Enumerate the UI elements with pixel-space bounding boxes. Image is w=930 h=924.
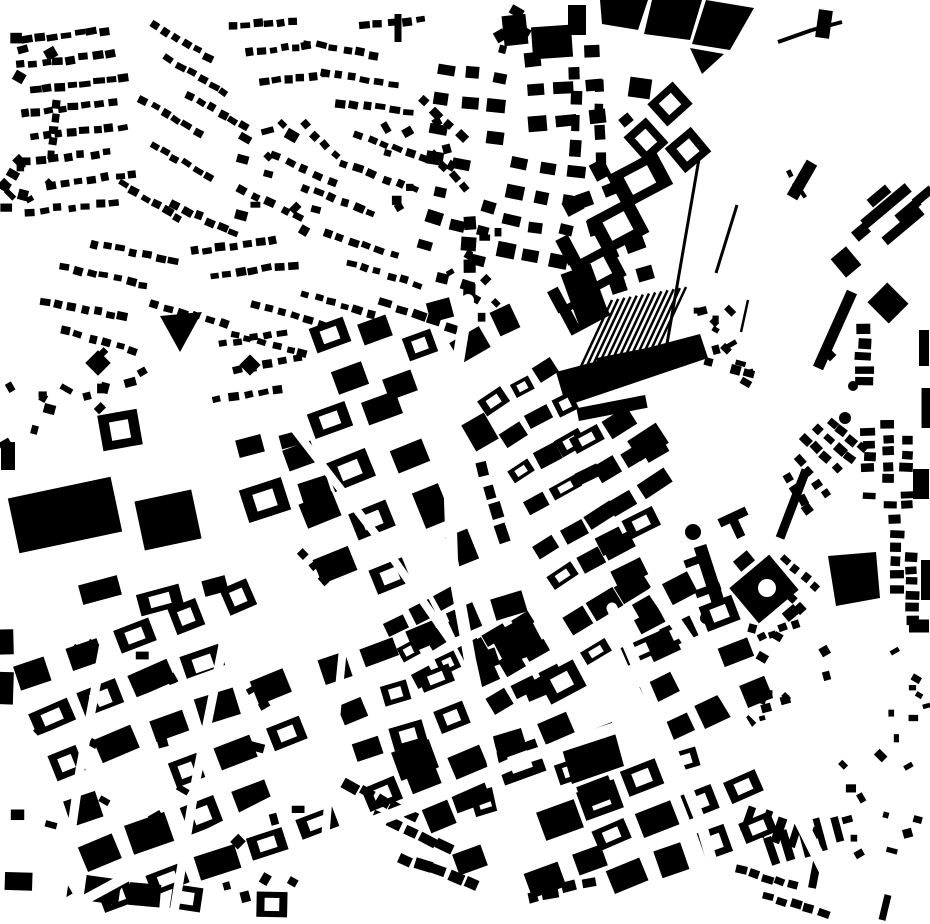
building-footprint	[228, 392, 240, 402]
building-footprint	[553, 81, 574, 94]
building-footprint	[34, 33, 45, 42]
building-footprint	[293, 354, 302, 362]
building-footprint	[60, 179, 70, 187]
building-footprint	[594, 125, 605, 140]
building-footprint	[854, 352, 871, 361]
building-footprint	[11, 810, 24, 821]
building-footprint	[240, 22, 250, 28]
building-footprint	[890, 556, 900, 566]
building-footprint	[712, 316, 718, 324]
building-footprint	[36, 156, 47, 165]
building-footprint	[49, 126, 59, 134]
building-footprint	[335, 99, 346, 108]
building-footprint	[863, 492, 876, 499]
figure-ground-map	[0, 0, 930, 924]
building-footprint	[68, 205, 76, 213]
building-footprint	[210, 273, 219, 280]
building-footprint	[41, 84, 51, 93]
building-footprint	[263, 20, 273, 27]
building-footprint	[256, 237, 266, 246]
building-footprint	[292, 806, 305, 813]
building-footprint	[66, 302, 76, 312]
building-footprint	[594, 104, 603, 117]
building-footprint	[486, 131, 505, 146]
courtyard	[264, 898, 279, 911]
building-footprint	[425, 150, 444, 166]
building-footprint	[888, 514, 901, 524]
building-footprint	[882, 474, 894, 483]
building-footprint	[913, 469, 929, 499]
building-footprint	[10, 33, 22, 44]
building-footprint	[909, 620, 929, 633]
building-footprint	[567, 165, 587, 179]
building-footprint	[302, 40, 311, 49]
building-footprint	[571, 91, 583, 105]
building-polygon	[828, 552, 880, 606]
building-footprint	[388, 81, 399, 88]
building-footprint	[270, 47, 278, 54]
building-footprint	[249, 333, 258, 341]
courtyard	[109, 419, 131, 441]
building-footprint	[0, 672, 14, 705]
building-footprint	[478, 313, 486, 322]
building-footprint	[30, 133, 39, 141]
building-footprint	[528, 222, 543, 234]
building-footprint	[53, 203, 62, 211]
building-footprint	[97, 384, 105, 394]
building-footprint	[902, 436, 913, 445]
building-footprint	[584, 45, 600, 58]
building-footprint	[103, 242, 112, 250]
building-footprint	[909, 715, 919, 721]
building-footprint	[309, 72, 318, 81]
building-footprint	[86, 176, 96, 185]
building-footprint	[94, 100, 105, 108]
building-footprint	[461, 97, 479, 110]
building-footprint	[99, 27, 110, 36]
building-footprint	[103, 123, 113, 132]
building-footprint	[568, 5, 586, 35]
building-footprint	[17, 163, 24, 171]
building-footprint	[48, 137, 57, 146]
building-footprint	[94, 126, 102, 134]
building-footprint	[81, 101, 91, 109]
building-footprint	[890, 570, 904, 578]
building-footprint	[392, 196, 402, 205]
building-footprint	[856, 324, 870, 334]
building-footprint	[30, 85, 42, 93]
building-footprint	[571, 115, 580, 131]
building-footprint	[406, 184, 413, 191]
round-tower	[848, 381, 858, 391]
building-footprint	[262, 359, 273, 369]
building-footprint	[899, 462, 913, 472]
building-footprint	[30, 108, 40, 117]
building-footprint	[92, 50, 104, 60]
building-footprint	[229, 243, 238, 251]
building-footprint	[343, 46, 352, 54]
building-footprint	[5, 872, 33, 891]
building-footprint	[883, 435, 894, 444]
building-footprint	[25, 209, 35, 217]
building-footprint	[863, 441, 875, 449]
building-footprint	[106, 76, 116, 83]
building-footprint	[68, 82, 78, 89]
building-footprint	[880, 420, 894, 429]
building-footprint	[67, 128, 77, 137]
building-footprint	[0, 629, 14, 654]
building-footprint	[127, 170, 136, 178]
building-footprint	[334, 70, 342, 79]
building-footprint	[218, 340, 227, 347]
building-footprint	[78, 52, 88, 60]
building-footprint	[890, 585, 904, 593]
building-footprint	[250, 202, 260, 208]
building-footprint	[243, 240, 253, 248]
building-footprint	[52, 100, 61, 109]
building-footprint	[295, 74, 304, 82]
building-footprint	[463, 216, 476, 230]
building-footprint	[906, 591, 920, 600]
building-footprint	[902, 451, 913, 460]
building-footprint	[100, 172, 109, 182]
building-footprint	[765, 690, 773, 698]
building-footprint	[108, 199, 119, 206]
building-footprint	[21, 108, 30, 117]
building-footprint	[884, 501, 897, 508]
building-footprint	[569, 140, 582, 158]
building-footprint	[594, 79, 604, 92]
courtyard-circle	[758, 579, 776, 597]
building-footprint	[694, 308, 700, 314]
building-footprint	[433, 92, 449, 106]
building-footprint	[905, 566, 917, 574]
building-footprint	[888, 710, 894, 717]
building-footprint	[253, 18, 263, 27]
building-footprint	[76, 150, 84, 158]
building-footprint	[527, 115, 547, 132]
building-footprint	[96, 199, 105, 207]
round-tower	[685, 524, 701, 540]
building-footprint	[540, 162, 557, 176]
building-footprint	[222, 271, 232, 278]
building-footprint	[259, 77, 270, 85]
building-footprint	[495, 228, 502, 236]
building-footprint	[858, 338, 871, 349]
building-footprint	[292, 44, 299, 51]
building-footprint	[403, 109, 414, 116]
building-footprint	[347, 72, 356, 80]
building-footprint	[80, 203, 89, 209]
building-footprint	[93, 77, 105, 84]
building-footprint	[905, 552, 918, 562]
building-footprint	[51, 113, 59, 123]
building-footprint	[281, 43, 289, 51]
building-footprint	[851, 835, 858, 842]
building-footprint	[328, 44, 337, 51]
building-footprint	[94, 306, 103, 315]
building-footprint	[855, 377, 873, 386]
building-footprint	[268, 236, 277, 245]
map-viewport	[0, 0, 930, 924]
building-footprint	[846, 784, 856, 792]
building-footprint	[257, 47, 267, 55]
round-tower	[839, 412, 851, 424]
building-footprint	[65, 56, 76, 66]
building-footprint	[864, 452, 876, 461]
building-footprint	[860, 428, 875, 436]
building-footprint	[28, 61, 37, 68]
building-footprint	[128, 882, 161, 907]
building-footprint	[52, 57, 63, 65]
building-footprint	[214, 242, 225, 251]
building-footprint	[527, 83, 544, 96]
building-footprint	[64, 153, 74, 162]
building-footprint	[54, 83, 65, 92]
building-footprint	[909, 685, 916, 690]
building-footprint	[272, 385, 283, 394]
building-footprint	[906, 577, 918, 585]
building-footprint	[905, 603, 919, 612]
building-footprint	[464, 259, 476, 272]
building-footprint	[79, 126, 90, 134]
building-footprint	[461, 237, 477, 252]
building-footprint	[374, 78, 384, 86]
building-footprint	[894, 734, 899, 742]
building-footprint	[861, 463, 874, 472]
building-footprint	[138, 282, 147, 289]
building-footprint	[74, 178, 83, 185]
building-footprint	[275, 263, 285, 271]
building-footprint	[67, 103, 78, 111]
building-footprint	[568, 67, 579, 80]
building-footprint	[136, 652, 149, 660]
building-footprint	[890, 530, 905, 538]
building-footprint	[108, 98, 118, 106]
building-footprint	[628, 77, 653, 100]
building-footprint	[0, 204, 12, 212]
building-footprint	[855, 366, 874, 373]
building-footprint	[890, 543, 901, 552]
building-footprint	[47, 150, 54, 159]
building-footprint	[882, 446, 894, 455]
building-footprint	[288, 18, 297, 26]
building-footprint	[368, 51, 378, 60]
building-footprint	[103, 148, 111, 155]
building-footprint	[486, 98, 506, 113]
building-footprint	[276, 19, 285, 27]
building-footprint	[229, 22, 238, 29]
building-footprint	[245, 47, 254, 56]
building-footprint	[116, 173, 125, 179]
building-footprint	[190, 246, 199, 255]
building-footprint	[901, 491, 914, 498]
building-footprint	[90, 151, 100, 160]
building-footprint	[363, 101, 372, 110]
building-footprint	[16, 60, 25, 68]
building-footprint	[531, 25, 573, 60]
building-footprint	[117, 73, 129, 83]
building-footprint	[402, 17, 413, 27]
building-footprint	[883, 462, 893, 471]
building-footprint	[465, 66, 479, 79]
building-footprint	[359, 21, 370, 29]
building-footprint	[479, 235, 490, 241]
building-footprint	[233, 338, 242, 345]
building-footprint	[372, 20, 381, 28]
building-footprint	[901, 500, 913, 509]
building-footprint	[288, 262, 299, 270]
building-footprint	[284, 75, 292, 83]
building-footprint	[60, 32, 71, 39]
